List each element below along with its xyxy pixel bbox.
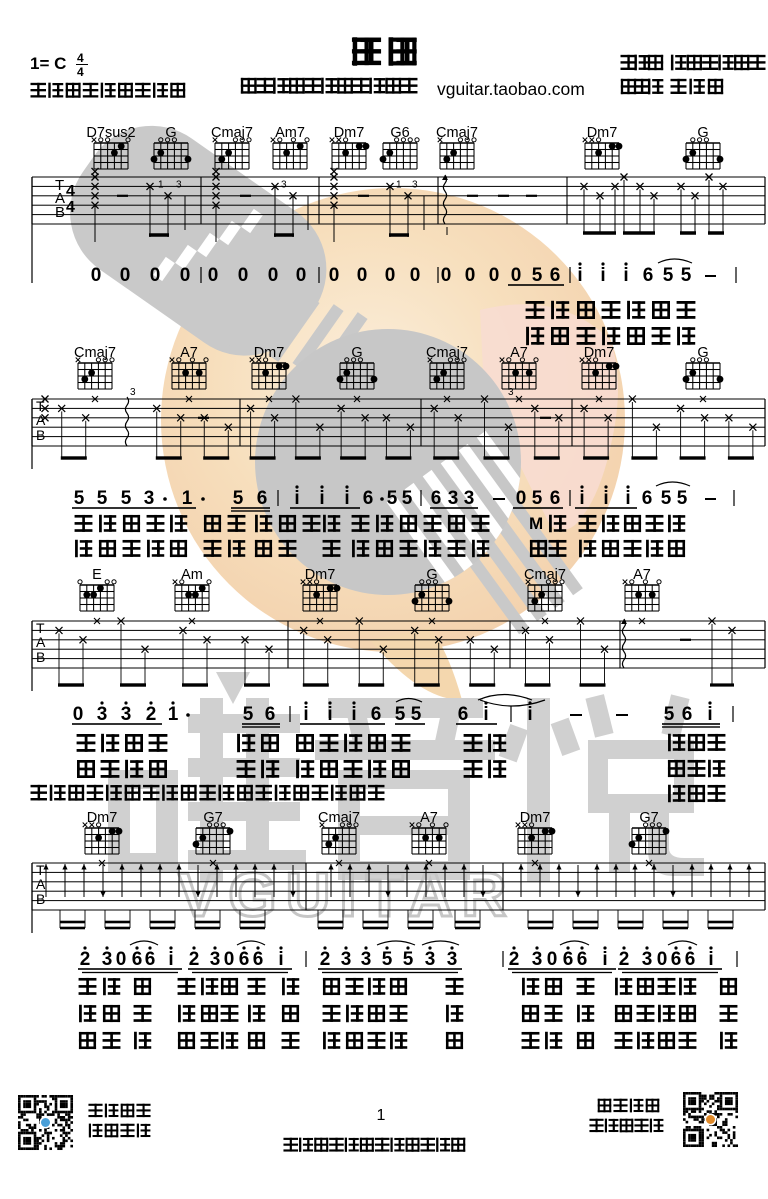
svg-text:5: 5 xyxy=(532,488,543,509)
svg-text:6: 6 xyxy=(458,704,469,725)
svg-text:6: 6 xyxy=(643,265,654,286)
svg-text:G: G xyxy=(697,125,708,141)
svg-text:B: B xyxy=(55,204,65,221)
svg-text:3: 3 xyxy=(508,387,514,398)
svg-text:i: i xyxy=(600,265,605,286)
svg-text:4: 4 xyxy=(66,199,75,216)
svg-text:Cmaj7: Cmaj7 xyxy=(436,125,478,141)
svg-text:0: 0 xyxy=(329,265,340,286)
svg-text:6: 6 xyxy=(671,949,682,970)
svg-text:5: 5 xyxy=(661,488,672,509)
svg-text:Cmaj7: Cmaj7 xyxy=(74,345,116,361)
svg-text:0: 0 xyxy=(116,949,127,970)
svg-text:M: M xyxy=(529,514,543,533)
svg-text:3: 3 xyxy=(341,949,352,970)
svg-text:i: i xyxy=(577,265,582,286)
svg-text:4: 4 xyxy=(77,51,84,65)
svg-text:0: 0 xyxy=(357,265,368,286)
svg-text:A: A xyxy=(36,876,46,892)
svg-text:i: i xyxy=(344,488,349,509)
svg-text:i: i xyxy=(294,488,299,509)
svg-text:6: 6 xyxy=(239,949,250,970)
svg-text:6: 6 xyxy=(253,949,264,970)
svg-text:1: 1 xyxy=(377,1107,386,1124)
svg-text:2: 2 xyxy=(320,949,331,970)
svg-text:G7: G7 xyxy=(639,810,658,826)
svg-text:B: B xyxy=(36,891,45,907)
svg-text:0: 0 xyxy=(489,265,500,286)
svg-text:3: 3 xyxy=(425,949,436,970)
svg-text:A: A xyxy=(36,634,46,650)
svg-text:1: 1 xyxy=(396,180,402,191)
svg-text:0: 0 xyxy=(296,265,307,286)
svg-text:i: i xyxy=(603,488,608,509)
svg-text:i: i xyxy=(278,949,283,970)
svg-text:2: 2 xyxy=(509,949,520,970)
svg-text:E: E xyxy=(92,567,102,583)
svg-text:A7: A7 xyxy=(510,345,528,361)
svg-text:5: 5 xyxy=(403,949,414,970)
svg-text:1: 1 xyxy=(182,488,193,509)
svg-text:i: i xyxy=(579,488,584,509)
svg-text:A7: A7 xyxy=(180,345,198,361)
svg-text:i: i xyxy=(303,704,308,725)
svg-text:6: 6 xyxy=(257,488,268,509)
svg-text:6: 6 xyxy=(550,265,561,286)
svg-text:5: 5 xyxy=(382,949,393,970)
svg-text:0: 0 xyxy=(224,949,235,970)
svg-text:6: 6 xyxy=(563,949,574,970)
svg-text:5: 5 xyxy=(97,488,108,509)
svg-text:5: 5 xyxy=(663,265,674,286)
svg-text:3: 3 xyxy=(361,949,372,970)
svg-text:5: 5 xyxy=(411,704,422,725)
svg-text:5: 5 xyxy=(532,265,543,286)
svg-text:0: 0 xyxy=(268,265,279,286)
svg-text:i: i xyxy=(351,704,356,725)
svg-text:Cmaj7: Cmaj7 xyxy=(211,125,253,141)
svg-text:0: 0 xyxy=(180,265,191,286)
svg-text:5: 5 xyxy=(243,704,254,725)
svg-text:6: 6 xyxy=(685,949,696,970)
svg-text:3: 3 xyxy=(121,704,132,725)
svg-text:A7: A7 xyxy=(420,810,438,826)
svg-text:6: 6 xyxy=(577,949,588,970)
svg-text:3: 3 xyxy=(210,949,221,970)
svg-text:i: i xyxy=(707,704,712,725)
svg-text:0: 0 xyxy=(150,265,161,286)
svg-text:0: 0 xyxy=(511,265,522,286)
svg-text:6: 6 xyxy=(145,949,156,970)
svg-text:3: 3 xyxy=(447,949,458,970)
svg-text:0: 0 xyxy=(73,704,84,725)
svg-text:D7sus2: D7sus2 xyxy=(86,125,135,141)
svg-text:G: G xyxy=(165,125,176,141)
svg-text:Cmaj7: Cmaj7 xyxy=(426,345,468,361)
svg-text:6: 6 xyxy=(265,704,276,725)
svg-text:3: 3 xyxy=(281,180,287,191)
svg-text:G7: G7 xyxy=(203,810,222,826)
svg-text:3: 3 xyxy=(144,488,155,509)
svg-text:6: 6 xyxy=(132,949,143,970)
svg-text:A: A xyxy=(36,412,46,428)
svg-text:i: i xyxy=(625,488,630,509)
svg-text:5: 5 xyxy=(121,488,132,509)
svg-text:0: 0 xyxy=(516,488,527,509)
svg-text:2: 2 xyxy=(619,949,630,970)
svg-text:Am: Am xyxy=(181,567,203,583)
svg-text:B: B xyxy=(36,649,45,665)
svg-text:5: 5 xyxy=(74,488,85,509)
svg-text:3: 3 xyxy=(464,488,475,509)
svg-text:Cmaj7: Cmaj7 xyxy=(318,810,360,826)
svg-text:6: 6 xyxy=(550,488,561,509)
svg-text:3: 3 xyxy=(102,949,113,970)
svg-text:5: 5 xyxy=(233,488,244,509)
svg-text:3: 3 xyxy=(176,180,182,191)
svg-text:1: 1 xyxy=(158,180,164,191)
svg-text:6: 6 xyxy=(363,488,374,509)
svg-text:3: 3 xyxy=(532,949,543,970)
svg-text:Cmaj7: Cmaj7 xyxy=(524,567,566,583)
svg-text:3: 3 xyxy=(97,704,108,725)
svg-text:B: B xyxy=(36,427,45,443)
svg-text:3: 3 xyxy=(412,180,418,191)
svg-text:vguitar.taobao.com: vguitar.taobao.com xyxy=(437,79,585,99)
svg-text:6: 6 xyxy=(682,704,693,725)
svg-text:1: 1 xyxy=(168,704,179,725)
svg-text:VGUITAR: VGUITAR xyxy=(178,861,515,930)
svg-text:i: i xyxy=(623,265,628,286)
svg-text:i: i xyxy=(327,704,332,725)
svg-text:0: 0 xyxy=(547,949,558,970)
svg-text:i: i xyxy=(483,704,488,725)
svg-text:6: 6 xyxy=(371,704,382,725)
svg-text:0: 0 xyxy=(91,265,102,286)
svg-text:5: 5 xyxy=(681,265,692,286)
svg-text:G6: G6 xyxy=(390,125,409,141)
svg-text:3: 3 xyxy=(130,387,136,398)
svg-text:1= C: 1= C xyxy=(30,54,66,73)
svg-text:0: 0 xyxy=(208,265,219,286)
svg-text:2: 2 xyxy=(146,704,157,725)
svg-text:G: G xyxy=(351,345,362,361)
svg-text:0: 0 xyxy=(410,265,421,286)
svg-text:6: 6 xyxy=(431,488,442,509)
svg-text:0: 0 xyxy=(238,265,249,286)
svg-text:4: 4 xyxy=(66,183,75,200)
svg-text:4: 4 xyxy=(77,65,84,79)
svg-text:3: 3 xyxy=(448,488,459,509)
svg-text:6: 6 xyxy=(642,488,653,509)
svg-text:5: 5 xyxy=(677,488,688,509)
svg-text:5: 5 xyxy=(402,488,413,509)
svg-text:G: G xyxy=(426,567,437,583)
svg-text:i: i xyxy=(708,949,713,970)
svg-text:2: 2 xyxy=(80,949,91,970)
svg-text:2: 2 xyxy=(189,949,200,970)
svg-text:i: i xyxy=(602,949,607,970)
svg-text:G: G xyxy=(697,345,708,361)
svg-text:A7: A7 xyxy=(633,567,651,583)
svg-text:3: 3 xyxy=(642,949,653,970)
svg-text:5: 5 xyxy=(387,488,398,509)
svg-text:i: i xyxy=(527,704,532,725)
svg-text:0: 0 xyxy=(385,265,396,286)
svg-text:0: 0 xyxy=(465,265,476,286)
svg-text:5: 5 xyxy=(664,704,675,725)
svg-text:0: 0 xyxy=(120,265,131,286)
svg-text:i: i xyxy=(319,488,324,509)
svg-text:5: 5 xyxy=(395,704,406,725)
svg-text:Am7: Am7 xyxy=(275,125,305,141)
svg-text:0: 0 xyxy=(657,949,668,970)
svg-text:i: i xyxy=(168,949,173,970)
svg-text:0: 0 xyxy=(441,265,452,286)
